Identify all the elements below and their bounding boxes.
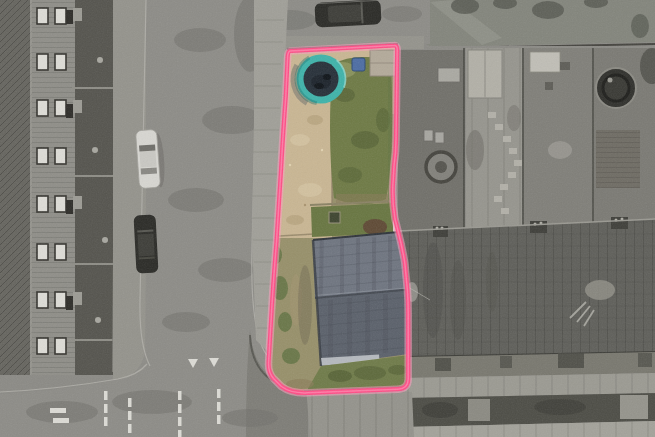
photo-grain-overlay	[0, 0, 655, 437]
drone-photo-canvas	[0, 0, 655, 437]
aerial-photo	[0, 0, 655, 437]
